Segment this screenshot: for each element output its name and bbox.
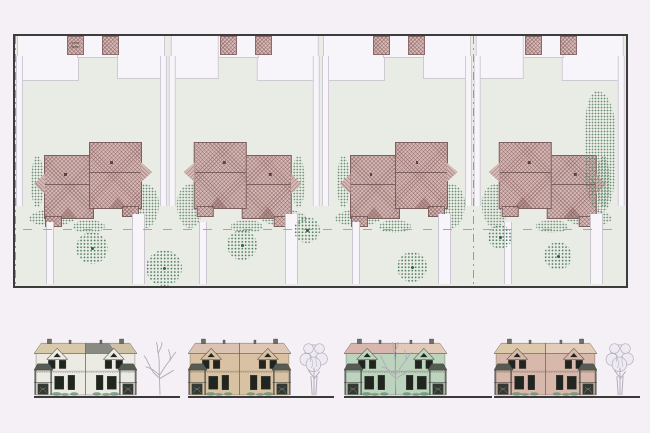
storage-shed: [560, 36, 577, 55]
elevation-group: [34, 336, 180, 398]
gable-end: [489, 162, 500, 182]
bare-tree: [140, 340, 180, 396]
storage-shed: STOR SHED: [67, 36, 84, 55]
ridge-line: [90, 172, 141, 173]
side-yard-walk: [322, 56, 329, 206]
shrubs: [231, 220, 263, 233]
roof-plan-unit: [89, 142, 142, 209]
front-walkway: [46, 222, 54, 284]
ridge-line: [396, 172, 447, 173]
porch-gable: [514, 197, 532, 208]
elevation-group: [494, 336, 640, 398]
roof-vent: [110, 161, 113, 164]
side-yard-walk: [474, 56, 481, 206]
roof-plan-unit: [242, 155, 292, 219]
roof-plan-unit: [194, 142, 247, 209]
driveway: [132, 214, 145, 284]
storage-shed: [408, 36, 425, 55]
roof-vent: [574, 173, 577, 176]
ground-line: [494, 396, 640, 398]
lots-row: STOR SHED: [15, 36, 626, 286]
ridge-line: [195, 172, 246, 173]
front-walkway: [352, 222, 360, 284]
ridge-line: [500, 172, 551, 173]
roof-vent: [223, 161, 226, 164]
hedge: [585, 91, 615, 213]
lot: [321, 36, 474, 286]
ridge-line: [351, 184, 399, 185]
ridge-line: [243, 184, 291, 185]
rear-patio: [171, 36, 219, 79]
leafy-tree: [294, 340, 334, 396]
elevation-group: [188, 336, 334, 398]
lot: STOR SHED: [15, 36, 168, 286]
roof-plan-unit: [395, 142, 448, 209]
rear-patio: [423, 36, 471, 79]
porch-gable: [109, 197, 127, 208]
duplex-elevation: [188, 338, 291, 396]
storage-shed: [525, 36, 542, 55]
lot-line: [15, 36, 16, 286]
ground-line: [188, 396, 334, 398]
front-walkway: [504, 222, 512, 284]
leafy-tree: [600, 340, 640, 396]
ridge-line: [45, 184, 93, 185]
side-yard-walk: [169, 56, 176, 206]
storage-shed: [220, 36, 237, 55]
roof-vent: [64, 173, 67, 176]
shrubs: [73, 220, 105, 233]
side-yard-walk: [16, 56, 23, 206]
porch-gable: [415, 197, 433, 208]
porch-gable: [208, 197, 226, 208]
storage-shed-label: STOR SHED: [70, 42, 82, 49]
roof-vent: [416, 161, 419, 164]
ground-line: [34, 396, 180, 398]
roof-plan-unit: [44, 155, 94, 219]
lot: [168, 36, 321, 286]
duplex-elevation: [34, 338, 137, 396]
page: STOR SHED: [0, 0, 650, 433]
shrubs: [379, 220, 411, 233]
ground-line: [344, 396, 492, 398]
driveway: [590, 214, 603, 284]
side-yard-walk: [313, 56, 320, 206]
roof-vent: [370, 173, 373, 176]
storage-shed: [102, 36, 119, 55]
rear-patio: [117, 36, 165, 79]
porch-gable: [258, 207, 276, 218]
elevation-group: [344, 336, 492, 398]
side-yard-walk: [465, 56, 472, 206]
setback-line: [23, 229, 618, 230]
roof-plan-unit: [350, 155, 400, 219]
lot-line: [473, 36, 474, 286]
porch-gable: [59, 207, 77, 218]
front-walkway: [199, 222, 207, 284]
storage-shed: [373, 36, 390, 55]
gable-end: [184, 162, 195, 182]
gable-end: [447, 162, 458, 182]
rear-patio: [476, 36, 524, 79]
duplex-elevation: [494, 338, 597, 396]
side-yard-walk: [160, 56, 167, 206]
bare-tree: [376, 340, 416, 396]
side-yard-walk: [618, 56, 625, 206]
street-elevations: [0, 336, 650, 398]
driveway: [285, 214, 298, 284]
driveway: [438, 214, 451, 284]
site-plan: STOR SHED: [13, 34, 628, 288]
porch-gable: [365, 207, 383, 218]
shrubs: [536, 220, 568, 233]
roof-vent: [528, 161, 531, 164]
storage-shed: [255, 36, 272, 55]
porch-gable: [564, 207, 582, 218]
gable-end: [141, 162, 152, 182]
roof-plan-unit: [499, 142, 552, 209]
roof-vent: [269, 173, 272, 176]
